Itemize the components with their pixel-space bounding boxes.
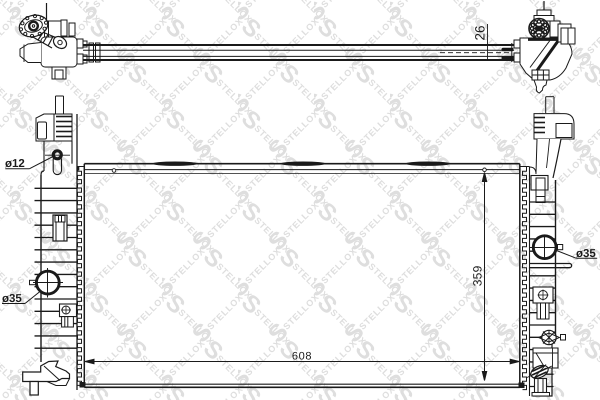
svg-text:ø35: ø35 <box>576 248 596 260</box>
svg-text:608: 608 <box>292 351 312 363</box>
svg-text:ø12: ø12 <box>5 158 25 170</box>
svg-text:359: 359 <box>471 265 485 286</box>
svg-text:26: 26 <box>473 25 488 40</box>
svg-text:ø35: ø35 <box>2 293 22 305</box>
